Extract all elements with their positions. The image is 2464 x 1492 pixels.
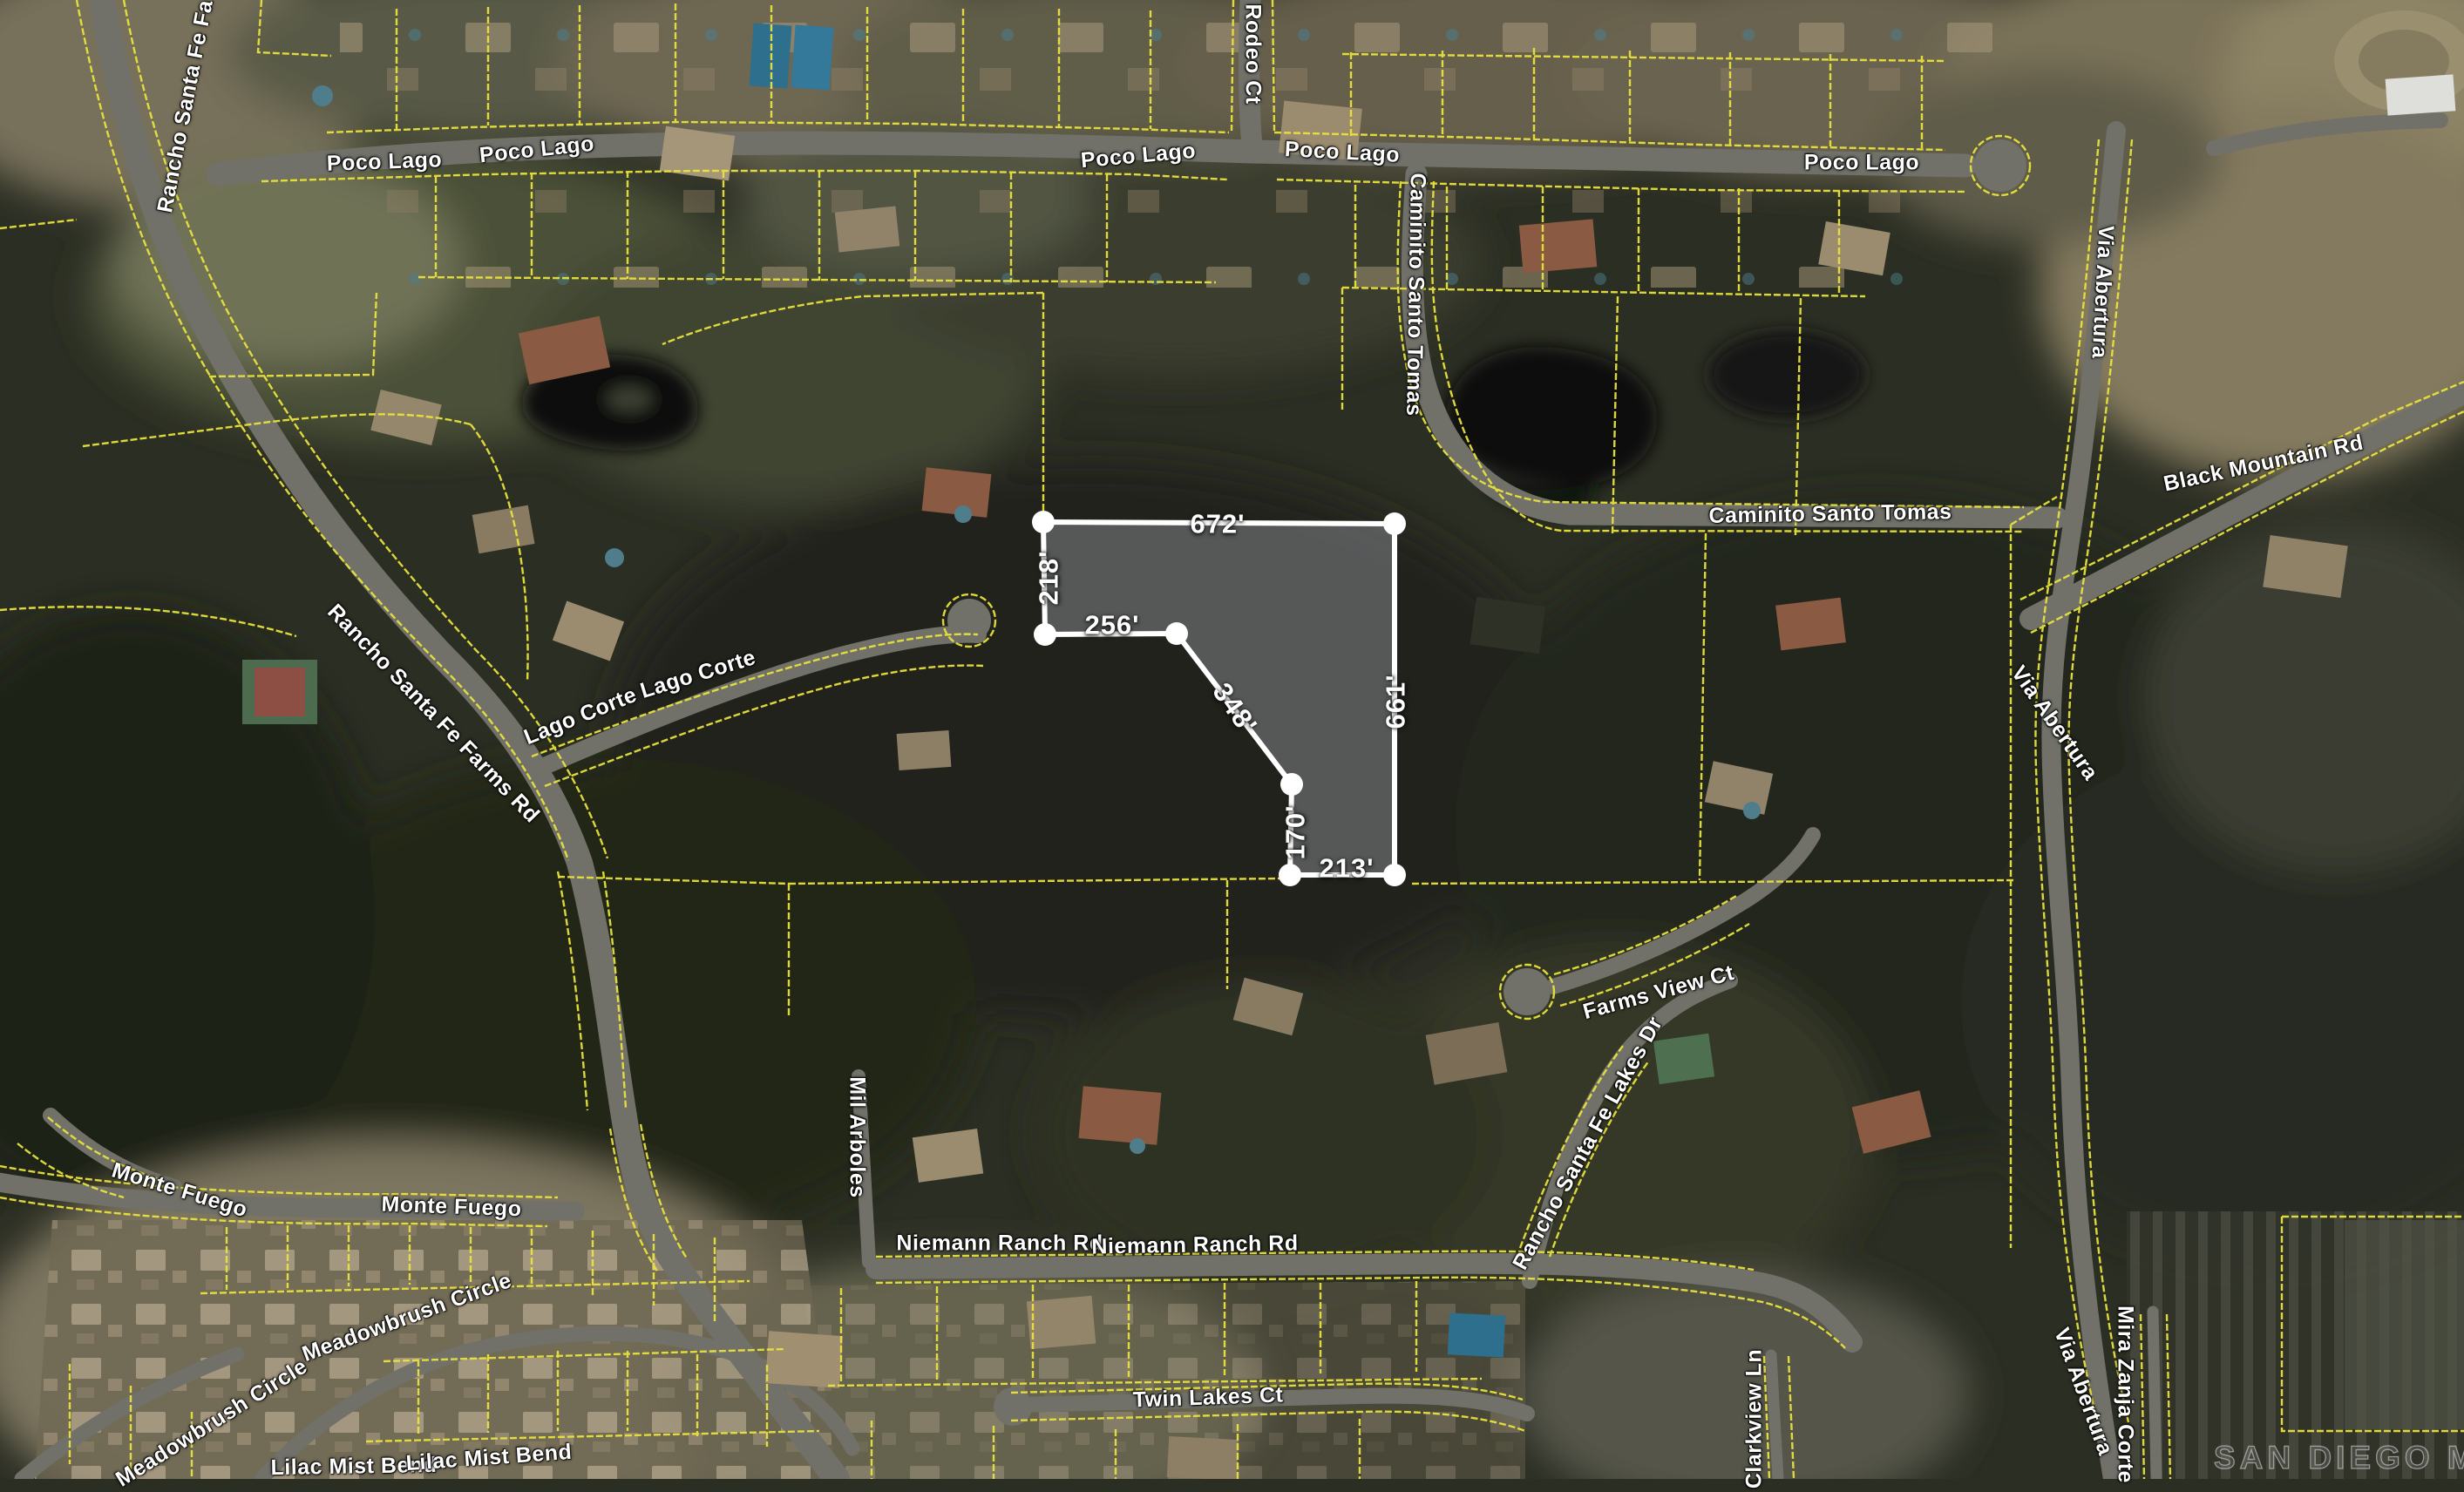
satellite-map-viewport[interactable]: Rancho Santa Fe FaPoco LagoPoco LagoPoco… — [0, 0, 2464, 1479]
mls-watermark: SAN DIEGO MLS — [2214, 1440, 2464, 1476]
satellite-basemap — [0, 0, 2464, 1479]
